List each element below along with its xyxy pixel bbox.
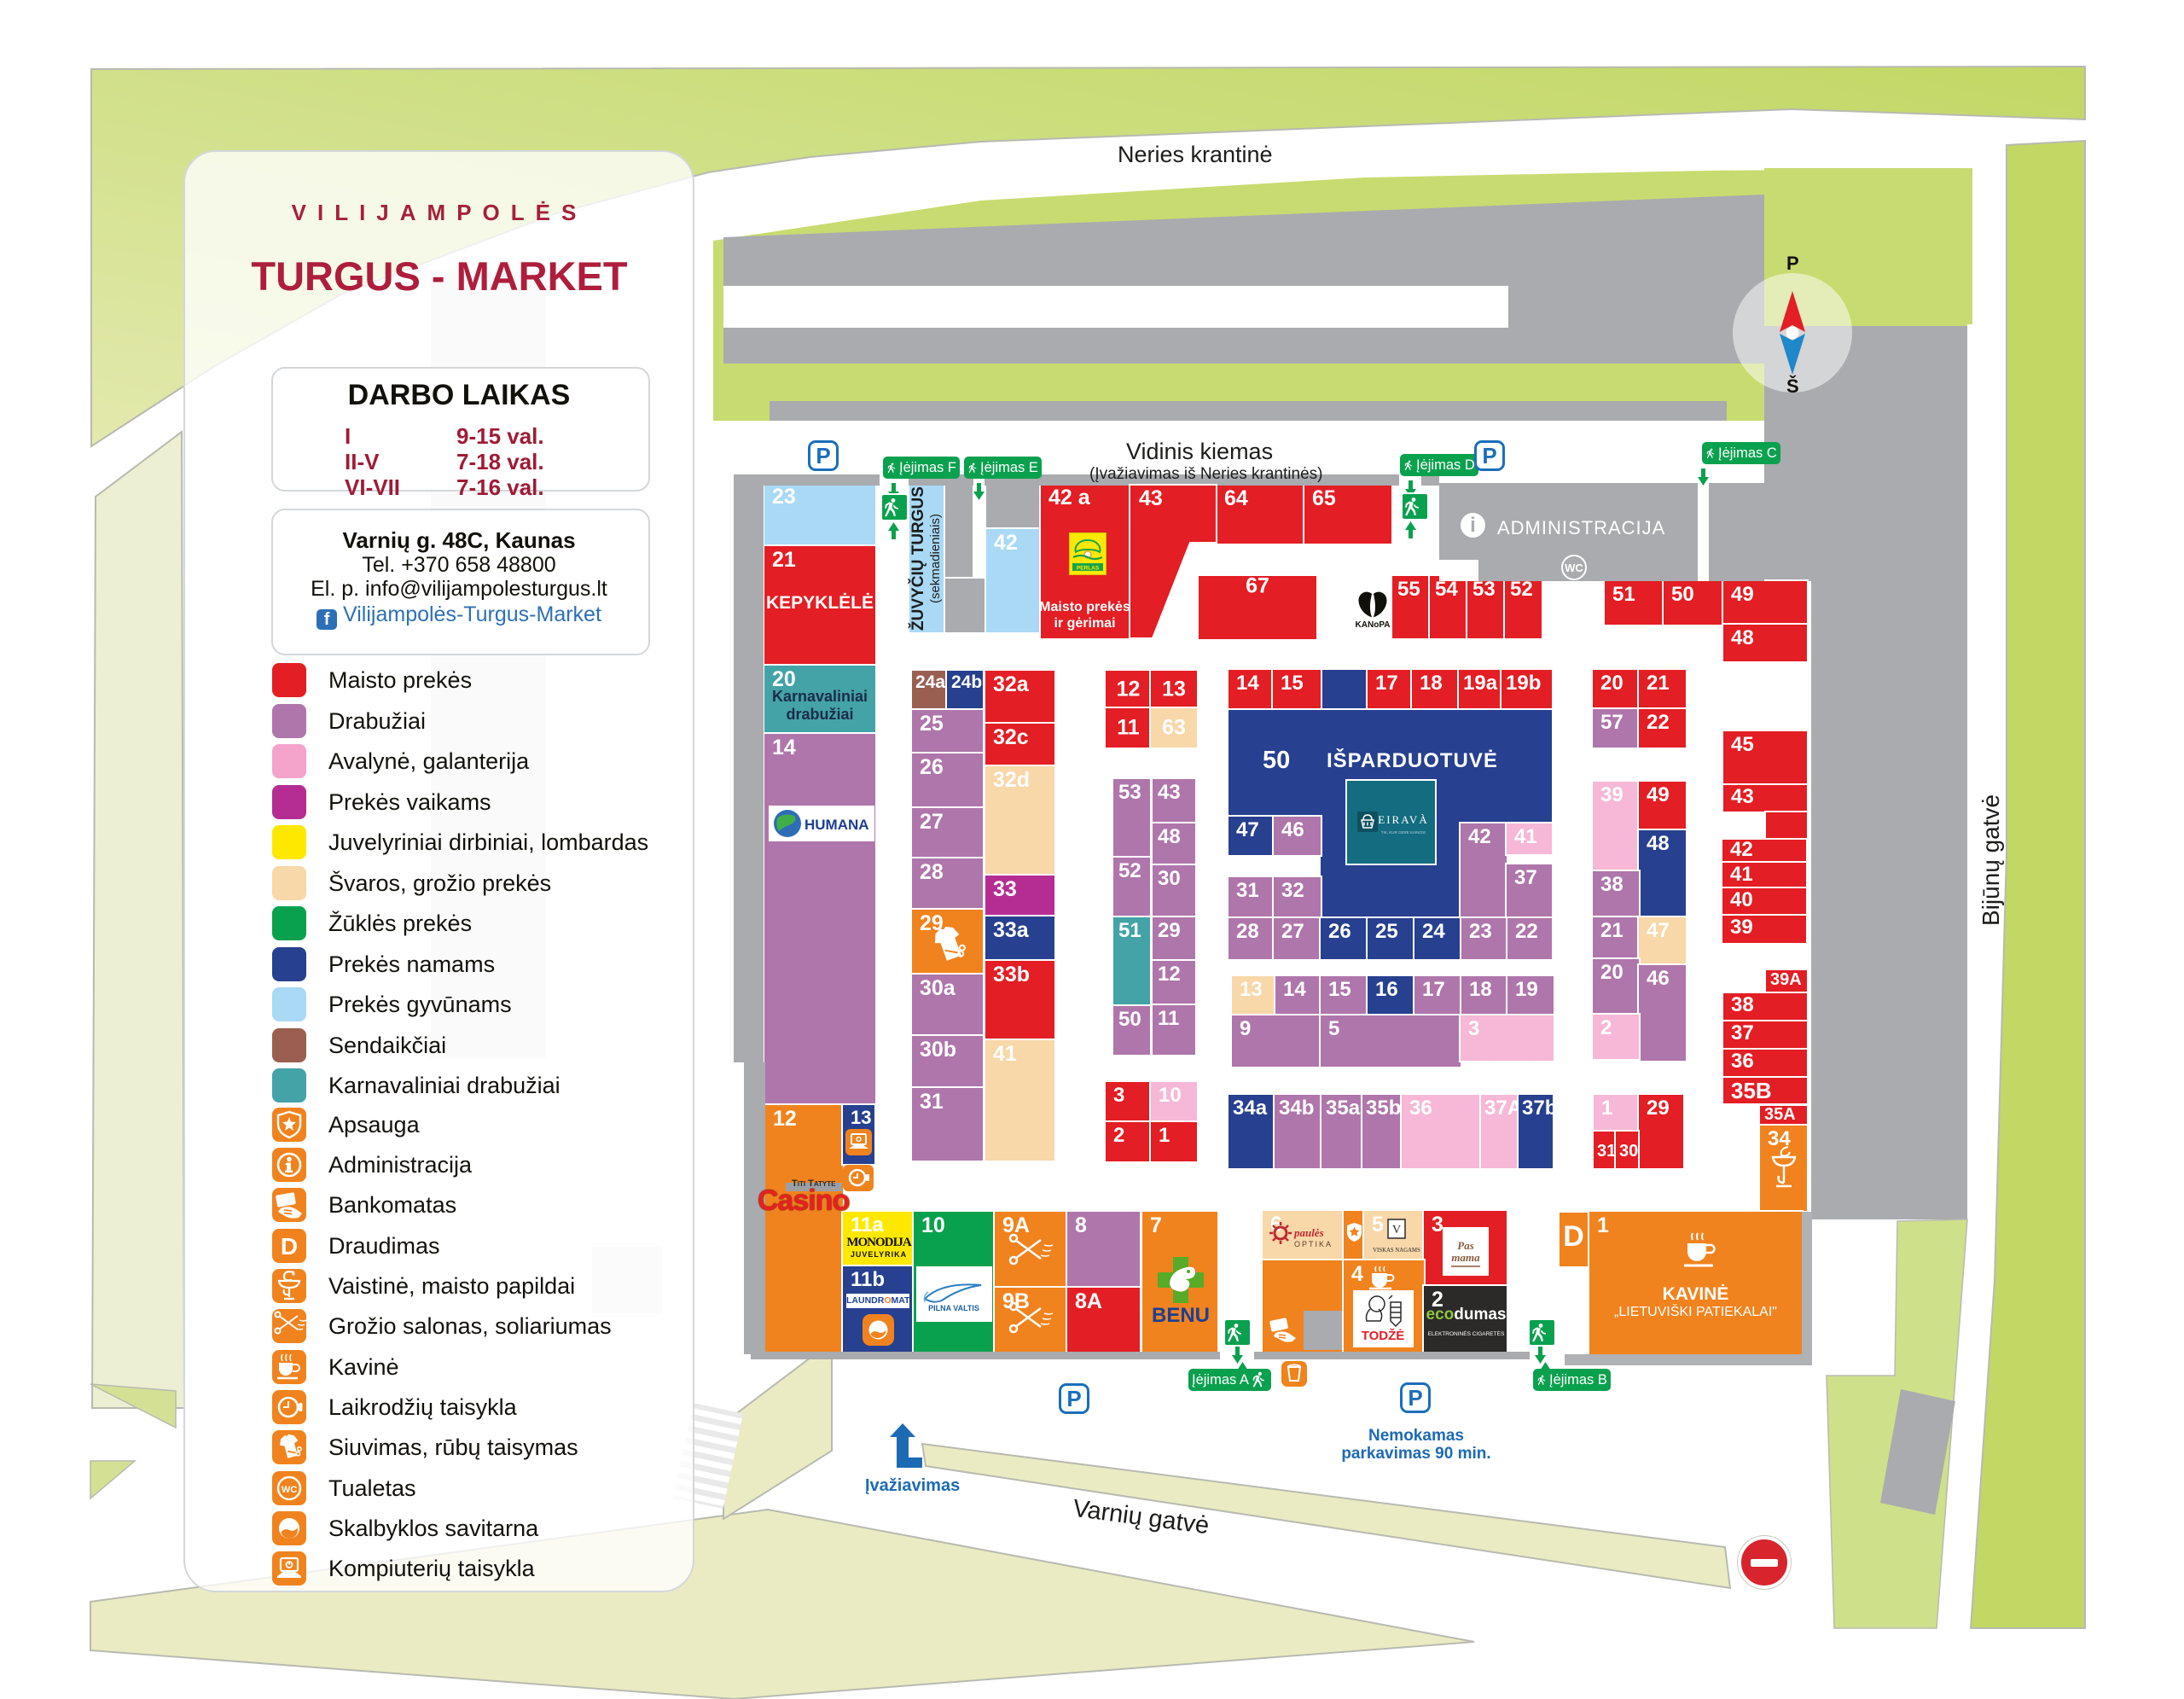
svg-text:PILNA VALTIS: PILNA VALTIS [928,1304,979,1312]
svg-text:V: V [1392,1224,1401,1236]
svg-text:PERLAS: PERLAS [1077,566,1100,572]
svg-text:Pas: Pas [1457,1239,1474,1252]
svg-text:EIRAVÀ: EIRAVÀ [1378,813,1428,826]
svg-text:KANoPA: KANoPA [1355,620,1390,630]
svg-text:HUMANA: HUMANA [804,817,869,833]
svg-text:mama: mama [1451,1251,1480,1264]
svg-text:D: D [281,1233,298,1260]
svg-text:paulės: paulės [1293,1226,1324,1239]
svg-text:WC: WC [282,1485,297,1495]
svg-text:TIK, KUR GERE KAINOS!: TIK, KUR GERE KAINOS! [1381,830,1426,835]
svg-text:VISKAS NAGAMS: VISKAS NAGAMS [1373,1248,1420,1254]
svg-text:OPTIKA: OPTIKA [1294,1240,1333,1248]
svg-text:TODŽĖ: TODŽĖ [1362,1328,1405,1343]
